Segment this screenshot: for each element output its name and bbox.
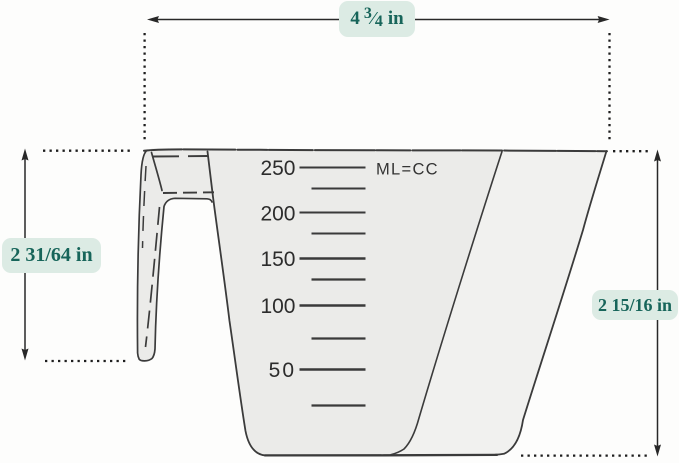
svg-text:50: 50 [269, 359, 296, 382]
svg-text:200: 200 [260, 203, 295, 226]
svg-text:150: 150 [260, 248, 295, 271]
svg-text:ML=CC: ML=CC [376, 161, 439, 179]
svg-text:250: 250 [260, 157, 295, 180]
svg-text:100: 100 [260, 295, 295, 318]
